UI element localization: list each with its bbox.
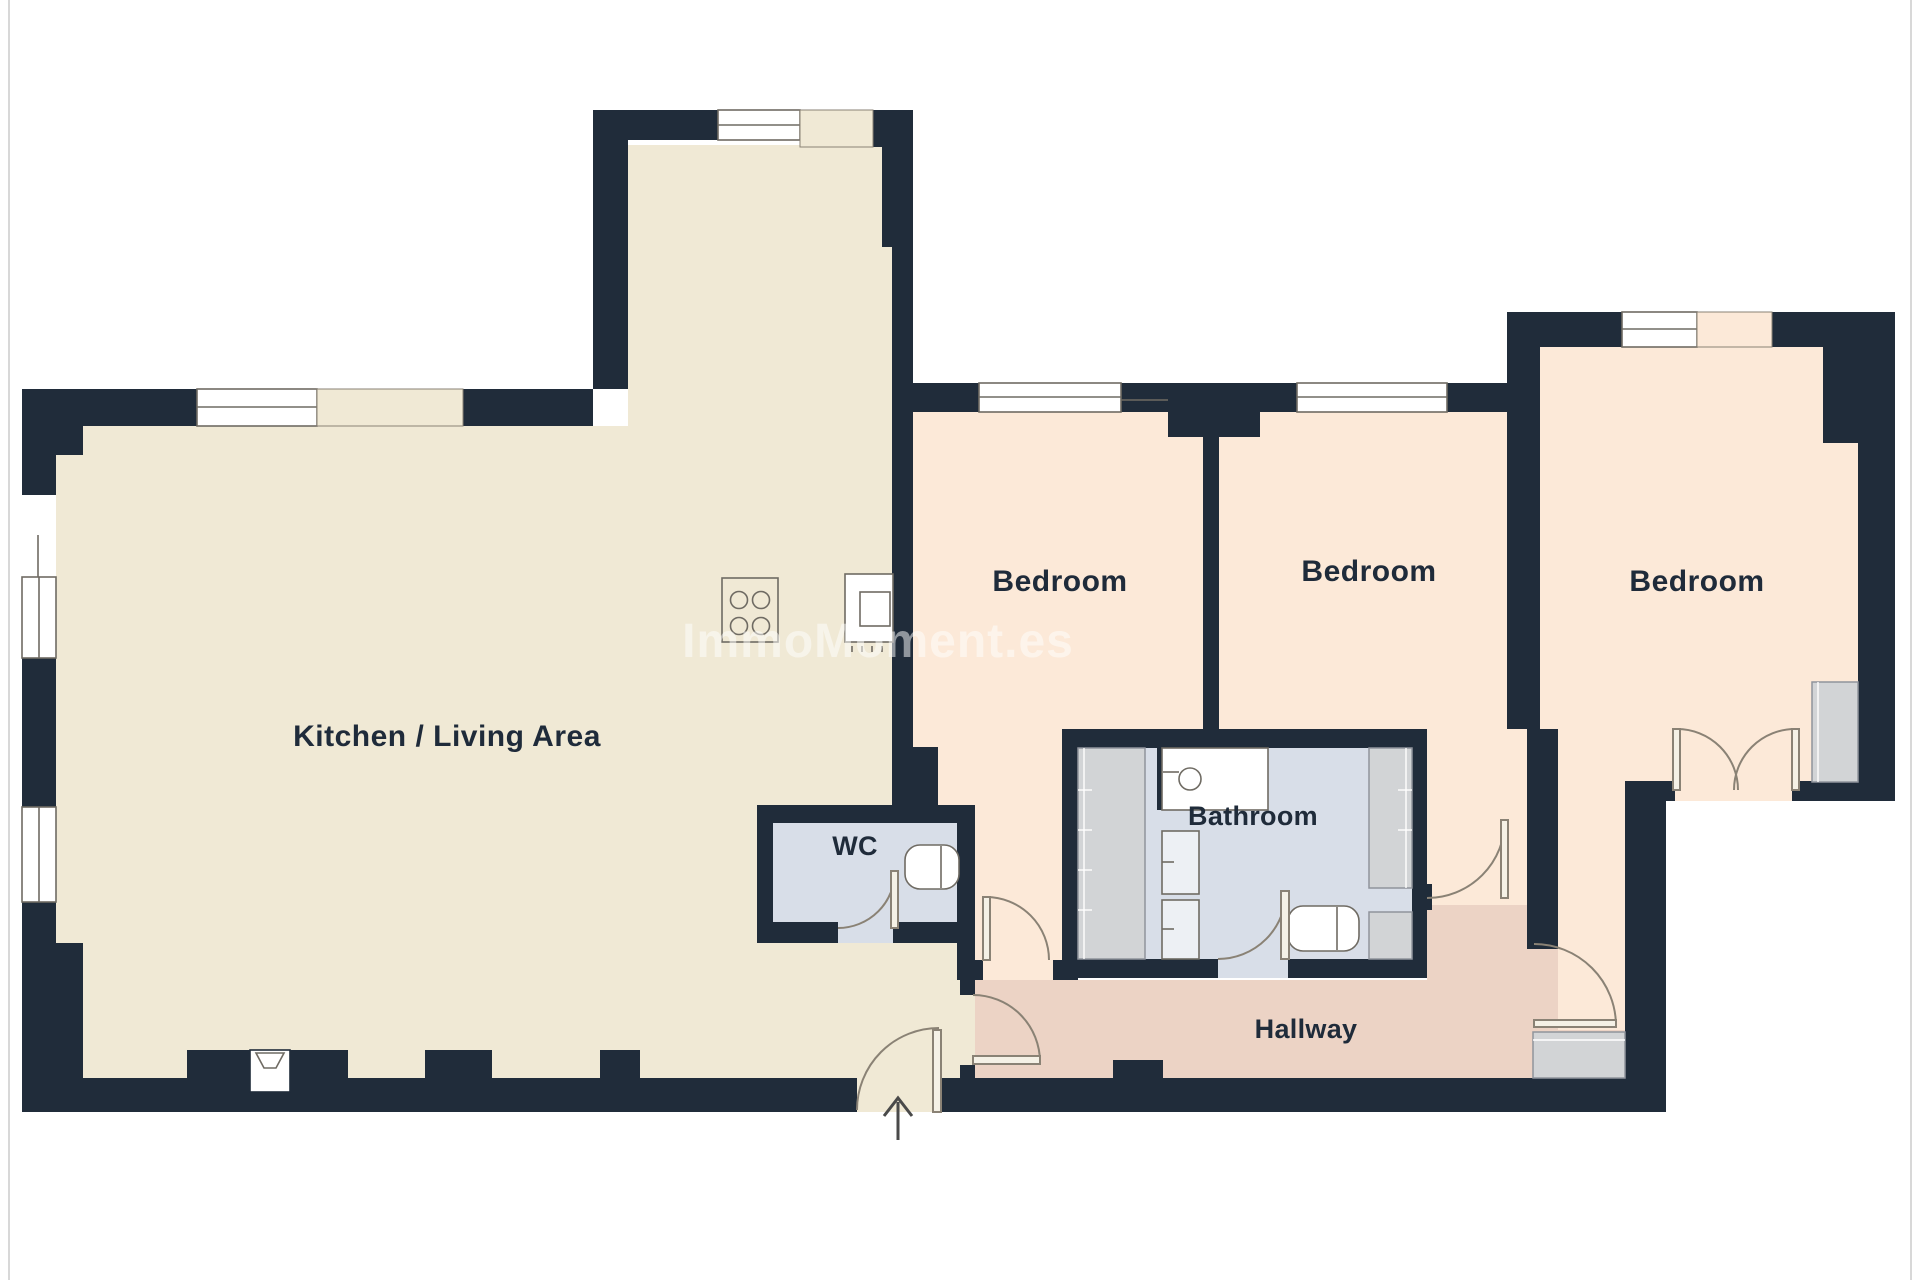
bathroom-right-closet-lower xyxy=(1369,912,1412,959)
bathroom-toilet-icon xyxy=(1288,906,1359,951)
window-kitchen-left-lower xyxy=(22,807,56,902)
bedroom2-label: Bedroom xyxy=(1301,555,1436,588)
window-kitchen-left-upper xyxy=(22,535,56,658)
window-seat-icon xyxy=(250,1050,290,1092)
bedroom3-floor xyxy=(1540,347,1858,1030)
watermark-text: ImmoMoment.es xyxy=(682,615,1074,668)
wc-label: WC xyxy=(832,831,878,861)
kitchen-living-label: Kitchen / Living Area xyxy=(293,720,601,753)
wc-toilet-icon xyxy=(905,845,959,889)
bathroom-left-closet xyxy=(1078,748,1145,959)
hallway-label: Hallway xyxy=(1255,1014,1358,1044)
bathroom-label: Bathroom xyxy=(1188,801,1318,831)
floorplan-canvas: Kitchen / Living Area Bedroom Bedroom Be… xyxy=(0,0,1920,1280)
bedroom3-closet xyxy=(1812,682,1858,782)
bedroom1-label: Bedroom xyxy=(992,565,1127,598)
hallway-closet xyxy=(1533,1032,1625,1078)
window-bedroom2 xyxy=(1297,383,1447,412)
bedroom3-label: Bedroom xyxy=(1629,565,1764,598)
floorplan-page: Kitchen / Living Area Bedroom Bedroom Be… xyxy=(0,0,1920,1280)
